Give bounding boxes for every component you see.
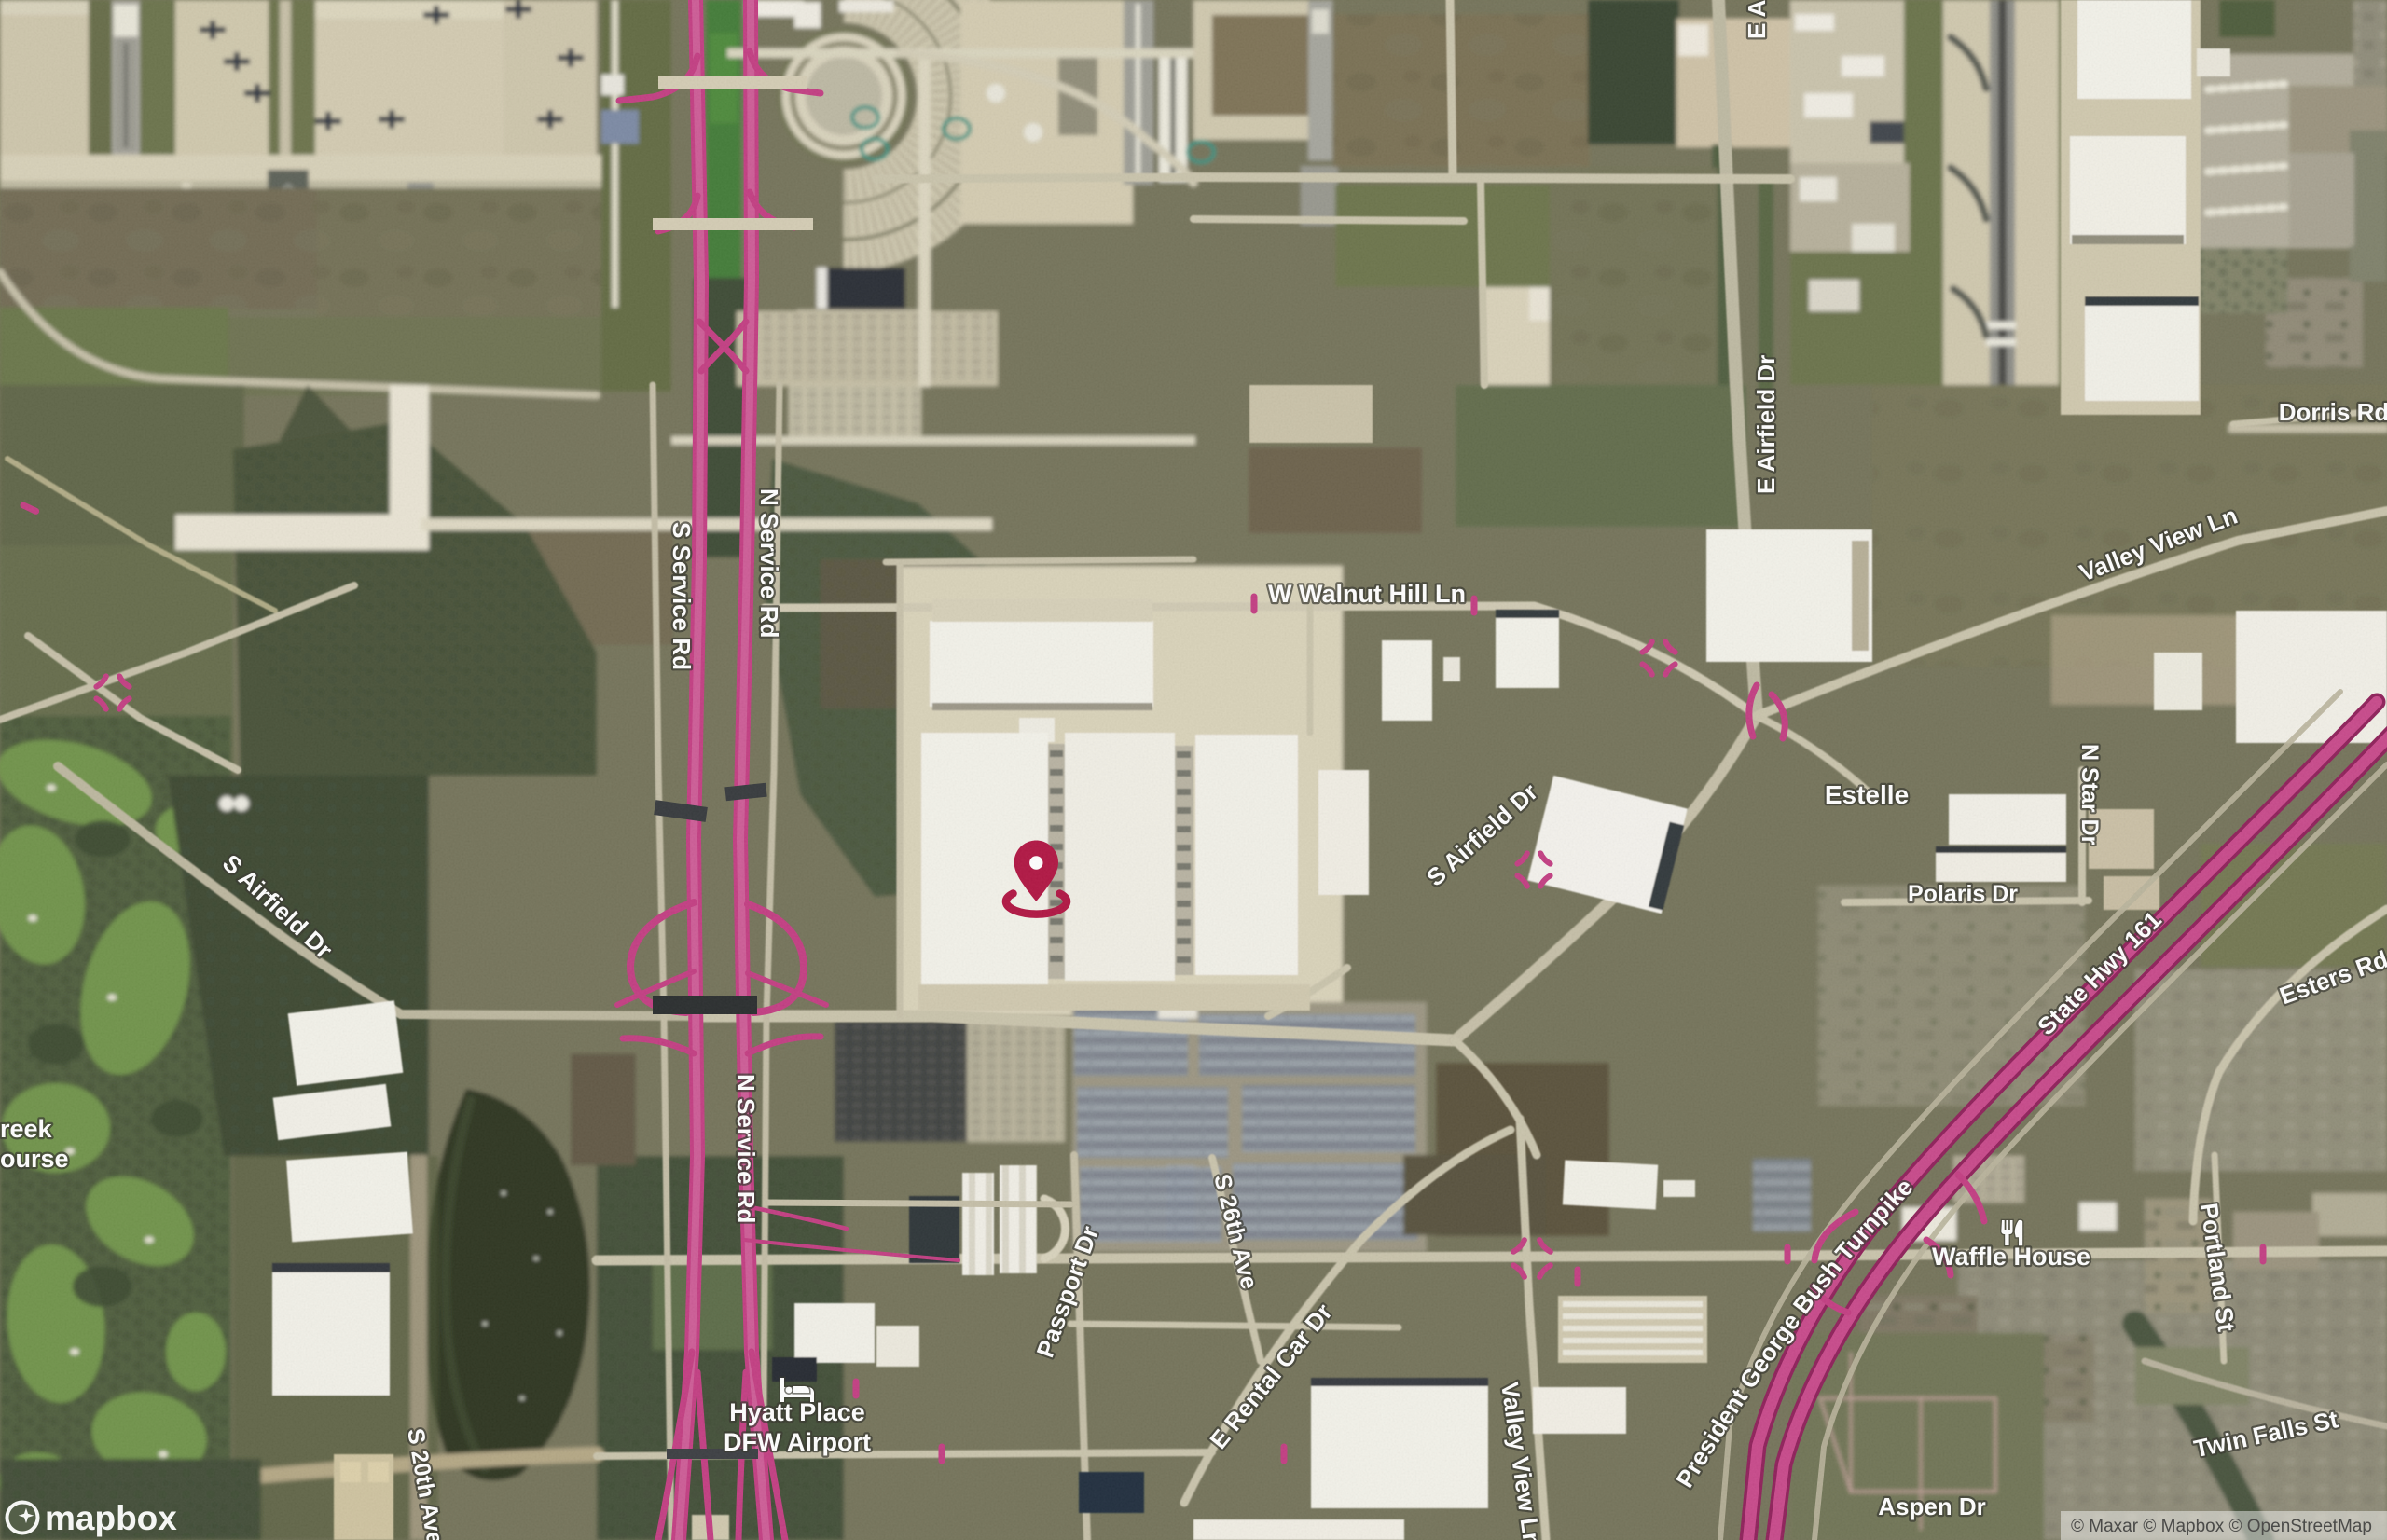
svg-text:© Maxar © Mapbox © OpenStreetM: © Maxar © Mapbox © OpenStreetMap bbox=[2071, 1517, 2372, 1536]
svg-text:mapbox: mapbox bbox=[45, 1499, 177, 1537]
